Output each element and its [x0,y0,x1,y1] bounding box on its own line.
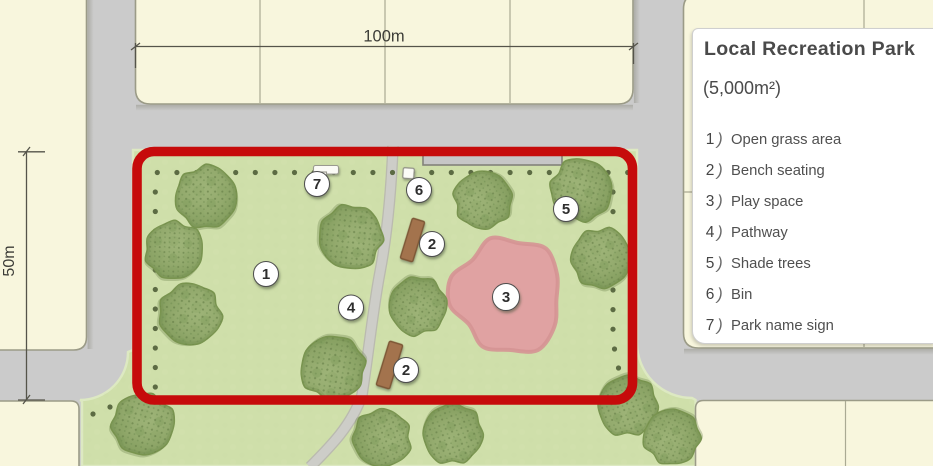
svg-text:7: 7 [313,176,321,193]
svg-text:6: 6 [415,182,423,199]
svg-text:1: 1 [262,266,270,283]
svg-text:2: 2 [428,236,436,253]
svg-text:100m: 100m [363,28,404,46]
svg-text:2: 2 [402,362,410,379]
svg-text:50m: 50m [1,245,18,276]
svg-text:4: 4 [347,300,356,317]
svg-text:3: 3 [502,289,510,306]
svg-text:5: 5 [562,201,570,218]
